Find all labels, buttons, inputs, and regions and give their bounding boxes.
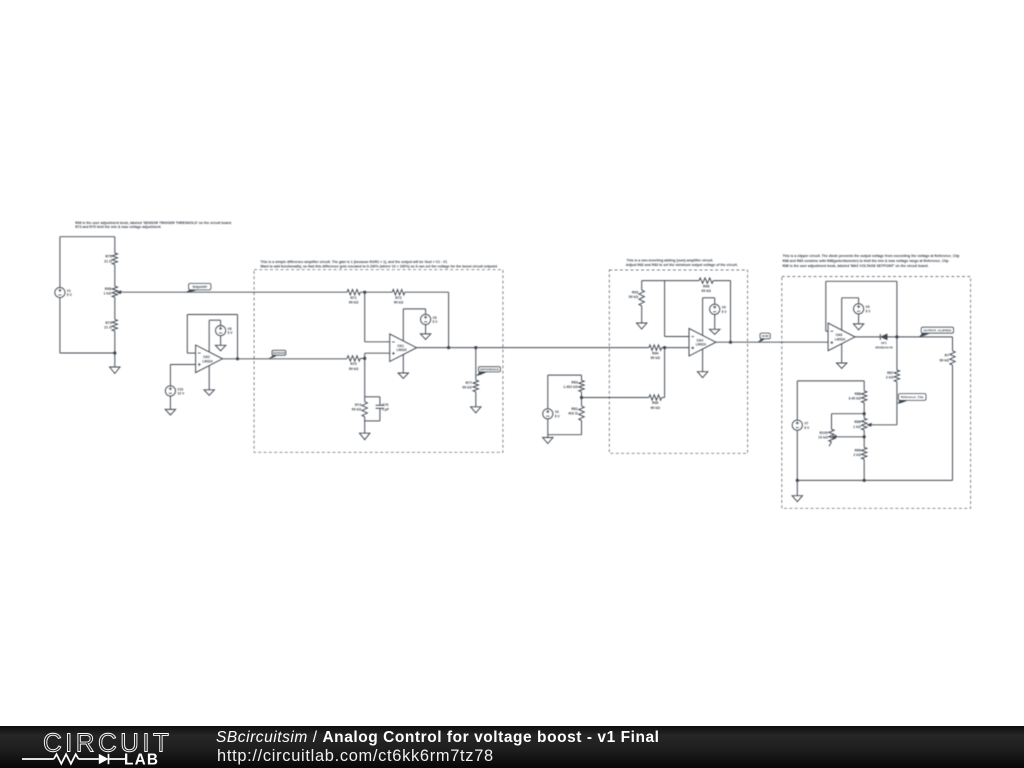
svg-text:99 kΩ: 99 kΩ [352, 408, 362, 412]
svg-text:SUM: SUM [762, 334, 769, 338]
svg-text:21 Ω: 21 Ω [104, 259, 112, 263]
svg-text:LAB: LAB [124, 752, 159, 768]
svg-text:SENSOR: SENSOR [273, 351, 287, 355]
svg-text:R87: R87 [887, 371, 893, 375]
svg-text:99 kΩ: 99 kΩ [650, 406, 660, 410]
svg-text:R75: R75 [105, 255, 111, 259]
svg-text:R70: R70 [350, 362, 356, 366]
svg-text:R90: R90 [652, 401, 658, 405]
svg-text:5 V: 5 V [804, 426, 810, 430]
svg-text:99 kΩ: 99 kΩ [939, 358, 949, 362]
svg-text:13 V: 13 V [177, 392, 185, 396]
svg-text:Adjust R82 and R83 to set the: Adjust R82 and R83 to set the minimum ou… [626, 263, 738, 267]
svg-text:R98: R98 [105, 287, 111, 291]
svg-text:R77: R77 [465, 381, 471, 385]
svg-text:LM324: LM324 [696, 343, 706, 347]
svg-text:99 kΩ: 99 kΩ [394, 301, 404, 305]
svg-text:This is a simple difference am: This is a simple difference amplifier ci… [260, 260, 447, 264]
svg-text:99 kΩ: 99 kΩ [629, 295, 639, 299]
svg-text:R89: R89 [855, 449, 861, 453]
svg-text:This is a clipper circuit. The: This is a clipper circuit. The diode pre… [783, 254, 960, 258]
svg-text:SetpointV: SetpointV [192, 285, 208, 289]
svg-text:R100: R100 [820, 431, 828, 435]
svg-text:R73 and R75 limit the min & ma: R73 and R75 limit the min & max voltage … [75, 225, 161, 229]
svg-text:2 kΩ: 2 kΩ [886, 376, 894, 380]
svg-text:R86: R86 [854, 420, 860, 424]
svg-text:R82: R82 [571, 407, 577, 411]
svg-text:LM324: LM324 [397, 348, 407, 352]
svg-text:R74: R74 [355, 403, 361, 407]
svg-text:DR2B219-06: DR2B219-06 [875, 345, 893, 349]
svg-text:99 kΩ: 99 kΩ [349, 301, 359, 305]
svg-text:R86 is the user adjustment kno: R86 is the user adjustment knob, labeled… [783, 264, 929, 268]
svg-text:LM324: LM324 [835, 337, 845, 341]
svg-text:5 V: 5 V [228, 331, 234, 335]
svg-text:5 V: 5 V [555, 414, 561, 418]
svg-text:5 V: 5 V [433, 320, 439, 324]
svg-text:OA1: OA1 [397, 344, 404, 348]
svg-text:OUTPUT_CLIPPED: OUTPUT_CLIPPED [923, 328, 952, 332]
svg-text:1 kΩ: 1 kΩ [853, 425, 861, 429]
svg-text:Reference_Clip: Reference_Clip [901, 395, 924, 399]
svg-text:1 kΩ: 1 kΩ [104, 292, 112, 296]
svg-text:OA6: OA6 [836, 333, 843, 337]
svg-text:R73: R73 [105, 321, 111, 325]
svg-text:R71: R71 [350, 296, 356, 300]
svg-text:R88 and R89 combine with R86(p: R88 and R89 combine with R86(potentiomet… [783, 259, 949, 263]
svg-text:5 V: 5 V [866, 309, 872, 313]
svg-text:OA4: OA4 [697, 338, 704, 342]
svg-text:99 kΩ: 99 kΩ [349, 367, 359, 371]
svg-text:10 kΩ: 10 kΩ [818, 436, 828, 440]
svg-text:99 kΩ: 99 kΩ [462, 386, 472, 390]
svg-text:This is a non-inverting adding: This is a non-inverting adding (sum) amp… [627, 259, 714, 263]
svg-text:99 kΩ: 99 kΩ [701, 289, 711, 293]
svg-text:R88: R88 [855, 392, 861, 396]
svg-text:2 kΩ: 2 kΩ [853, 453, 861, 457]
svg-text:1.402 kΩ: 1.402 kΩ [563, 385, 578, 389]
svg-text:C75: C75 [382, 403, 388, 407]
svg-text:Want to add functionality, so: Want to add functionality, so that this … [260, 265, 498, 269]
svg-text:402 Ω: 402 Ω [568, 412, 578, 416]
svg-text:R94: R94 [652, 351, 658, 355]
svg-text:R83: R83 [571, 381, 577, 385]
svg-text:R93: R93 [632, 290, 638, 294]
svg-text:5 V: 5 V [722, 310, 728, 314]
svg-text:1 µF: 1 µF [382, 408, 390, 412]
svg-text:LM324: LM324 [202, 359, 212, 363]
svg-text:R96: R96 [703, 284, 709, 288]
svg-text:R7: R7 [945, 354, 950, 358]
svg-text:21 Ω: 21 Ω [104, 326, 112, 330]
svg-text:R72: R72 [395, 296, 401, 300]
svg-text:3.40 kΩ: 3.40 kΩ [848, 397, 861, 401]
svg-text:99 kΩ: 99 kΩ [650, 356, 660, 360]
svg-text:5 V: 5 V [67, 293, 73, 297]
svg-text:DIFFERENCE: DIFFERENCE [480, 368, 499, 372]
svg-text:OA2: OA2 [203, 355, 210, 359]
